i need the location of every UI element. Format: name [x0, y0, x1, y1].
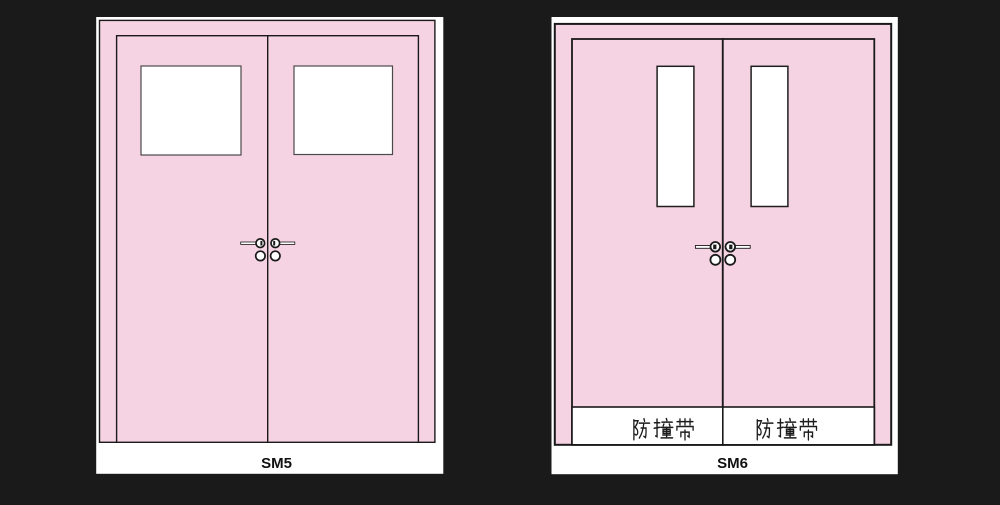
svg-text:SM5: SM5 — [261, 455, 292, 472]
svg-text:SM6: SM6 — [717, 455, 748, 472]
